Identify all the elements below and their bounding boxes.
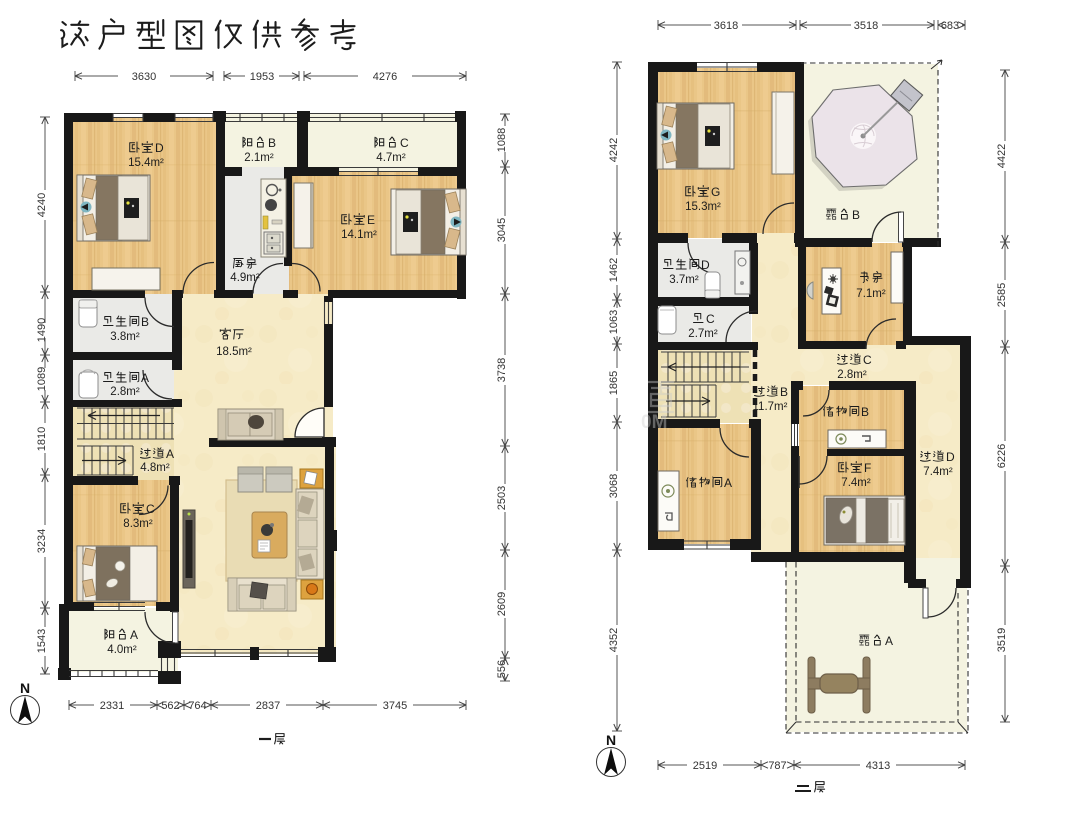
svg-text:B: B (861, 405, 869, 419)
svg-text:C: C (706, 312, 715, 326)
svg-text:C: C (400, 136, 409, 150)
svg-text:3519: 3519 (996, 628, 1008, 652)
svg-text:4240: 4240 (36, 193, 48, 217)
svg-text:0M: 0M (641, 412, 667, 433)
svg-text:1462: 1462 (608, 258, 620, 282)
svg-text:1543: 1543 (36, 629, 48, 653)
svg-text:2503: 2503 (496, 486, 508, 510)
svg-text:1063: 1063 (608, 310, 620, 334)
svg-text:787: 787 (768, 760, 786, 772)
svg-text:4313: 4313 (866, 760, 890, 772)
svg-text:1953: 1953 (250, 71, 274, 83)
svg-text:D: D (155, 141, 164, 155)
svg-text:N: N (20, 680, 30, 696)
svg-text:C: C (146, 502, 155, 516)
svg-text:3.8m²: 3.8m² (110, 331, 140, 343)
svg-text:B: B (780, 385, 788, 399)
svg-text:1865: 1865 (608, 371, 620, 395)
svg-text:8.3m²: 8.3m² (123, 518, 153, 530)
svg-text:764: 764 (188, 700, 206, 712)
svg-text:18.5m²: 18.5m² (216, 346, 252, 358)
svg-text:D: D (946, 450, 955, 464)
svg-text:683: 683 (941, 20, 959, 32)
svg-text:3518: 3518 (854, 20, 878, 32)
svg-text:11.7m²: 11.7m² (753, 401, 788, 413)
svg-text:3068: 3068 (608, 474, 620, 498)
svg-text:2.8m²: 2.8m² (837, 369, 867, 381)
svg-text:4.9m²: 4.9m² (230, 272, 260, 284)
svg-text:2585: 2585 (996, 283, 1008, 307)
svg-text:2.1m²: 2.1m² (244, 152, 274, 164)
svg-text:3738: 3738 (496, 358, 508, 382)
svg-text:F: F (864, 461, 871, 475)
svg-text:7.1m²: 7.1m² (856, 288, 886, 300)
svg-text:B: B (268, 136, 276, 150)
svg-text:2.8m²: 2.8m² (110, 386, 140, 398)
svg-text:2.7m²: 2.7m² (688, 328, 718, 340)
svg-text:3234: 3234 (36, 529, 48, 553)
svg-text:4352: 4352 (608, 628, 620, 652)
svg-text:4.8m²: 4.8m² (140, 462, 170, 474)
svg-text:3745: 3745 (383, 700, 407, 712)
svg-text:15.3m²: 15.3m² (685, 201, 721, 213)
svg-text:G: G (711, 185, 720, 199)
svg-text:2331: 2331 (100, 700, 124, 712)
svg-text:7.4m²: 7.4m² (841, 477, 871, 489)
svg-text:C: C (863, 353, 872, 367)
svg-text:2609: 2609 (496, 592, 508, 616)
svg-text:4.7m²: 4.7m² (376, 152, 406, 164)
svg-text:3630: 3630 (132, 71, 156, 83)
svg-text:B: B (852, 208, 860, 222)
svg-text:1490: 1490 (36, 318, 48, 342)
svg-text:7.4m²: 7.4m² (923, 466, 953, 478)
svg-text:1088: 1088 (496, 128, 508, 152)
svg-text:6226: 6226 (996, 444, 1008, 468)
svg-text:1089: 1089 (36, 367, 48, 391)
svg-text:4276: 4276 (373, 71, 397, 83)
svg-text:3618: 3618 (714, 20, 738, 32)
svg-text:2837: 2837 (256, 700, 280, 712)
svg-text:1810: 1810 (36, 427, 48, 451)
svg-text:A: A (166, 447, 174, 461)
svg-text:A: A (141, 371, 149, 385)
svg-text:562: 562 (161, 700, 179, 712)
svg-text:E: E (367, 213, 375, 227)
svg-text:B: B (141, 315, 149, 329)
svg-text:3.7m²: 3.7m² (669, 274, 699, 286)
svg-text:A: A (724, 476, 732, 490)
svg-text:14.1m²: 14.1m² (341, 229, 377, 241)
svg-text:A: A (130, 628, 138, 642)
svg-text:4422: 4422 (996, 144, 1008, 168)
svg-text:2519: 2519 (693, 760, 717, 772)
svg-text:D: D (701, 258, 710, 272)
svg-text:15.4m²: 15.4m² (128, 157, 164, 169)
svg-text:4242: 4242 (608, 138, 620, 162)
svg-text:3045: 3045 (496, 218, 508, 242)
svg-text:4.0m²: 4.0m² (107, 644, 137, 656)
svg-text:N: N (606, 732, 616, 748)
svg-text:A: A (885, 634, 893, 648)
